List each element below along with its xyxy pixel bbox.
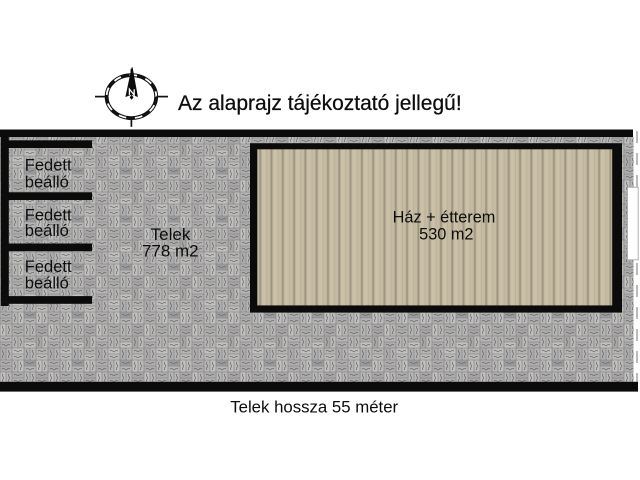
svg-text:beálló: beálló <box>25 274 69 292</box>
svg-text:Fedett: Fedett <box>25 157 72 175</box>
svg-text:Ház + étterem: Ház + étterem <box>393 209 496 227</box>
svg-text:778 m2: 778 m2 <box>142 242 199 261</box>
svg-text:beálló: beálló <box>25 173 69 191</box>
svg-text:beálló: beálló <box>25 222 69 240</box>
svg-text:Az alaprajz tájékoztató jelleg: Az alaprajz tájékoztató jellegű! <box>178 92 462 115</box>
svg-text:530 m2: 530 m2 <box>419 225 473 243</box>
svg-text:Telek hossza 55 méter: Telek hossza 55 méter <box>230 398 398 417</box>
